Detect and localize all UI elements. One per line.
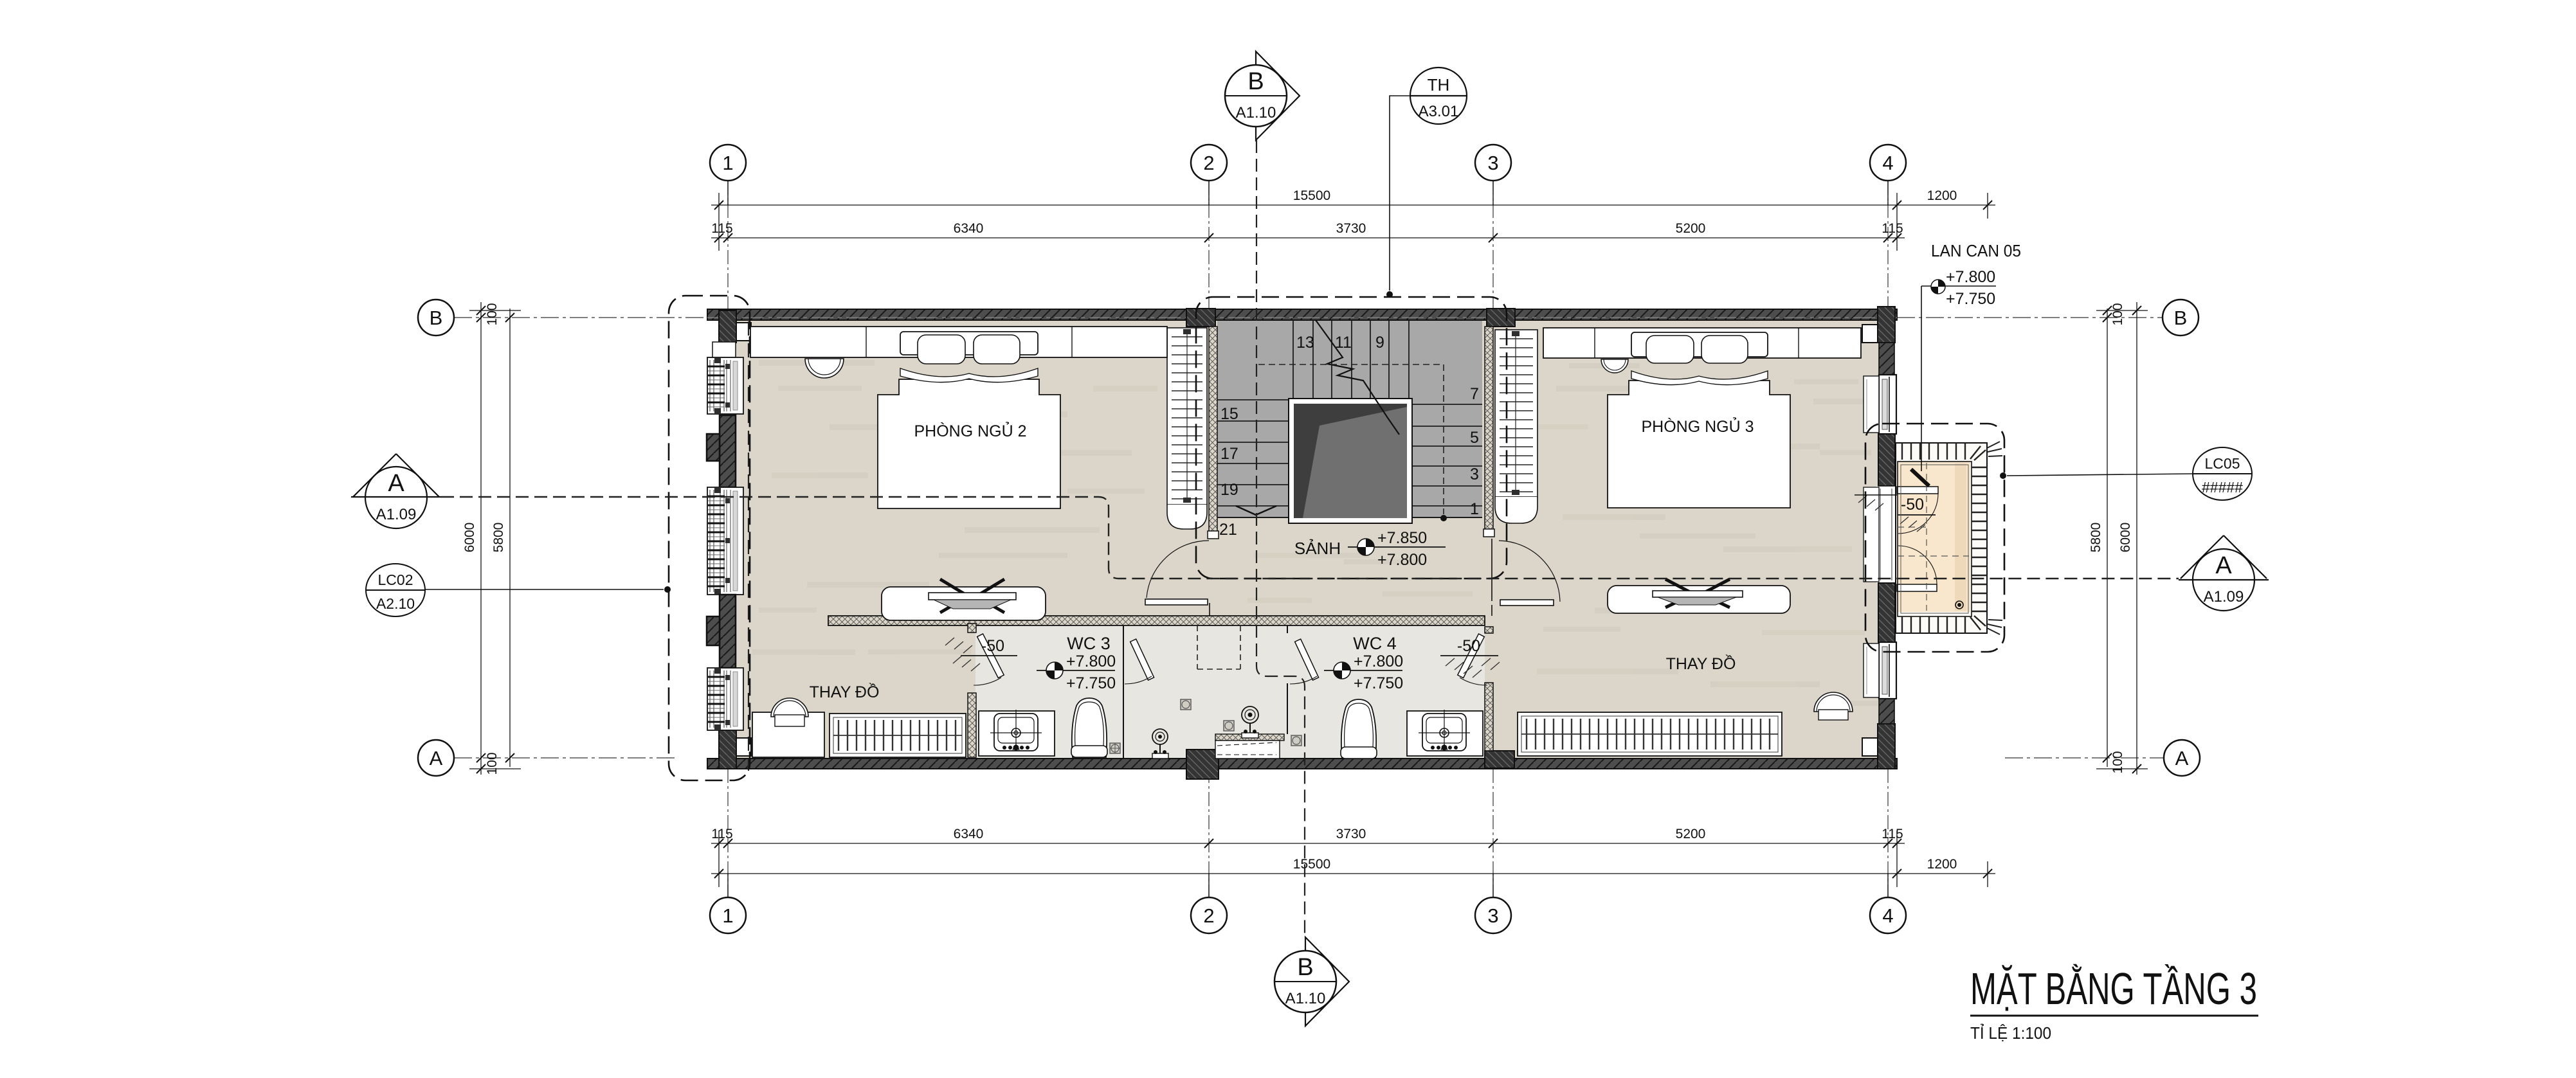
svg-text:100: 100 [2110, 751, 2125, 773]
svg-text:5: 5 [1470, 429, 1479, 447]
svg-text:11: 11 [1335, 334, 1352, 352]
svg-text:LAN CAN 05: LAN CAN 05 [1931, 241, 2021, 260]
svg-text:100: 100 [2110, 303, 2125, 325]
svg-text:A1.09: A1.09 [376, 506, 417, 523]
svg-text:6340: 6340 [954, 221, 984, 236]
svg-text:B: B [1247, 68, 1264, 95]
svg-text:5800: 5800 [2089, 523, 2103, 553]
svg-text:4: 4 [1882, 904, 1893, 927]
svg-text:A1.09: A1.09 [2204, 588, 2244, 606]
svg-text:-50: -50 [1457, 637, 1480, 655]
svg-text:1: 1 [1470, 500, 1479, 518]
svg-text:A: A [430, 747, 443, 769]
svg-text:100: 100 [485, 303, 500, 325]
svg-text:WC 4: WC 4 [1353, 634, 1397, 653]
svg-text:#####: ##### [2202, 479, 2243, 496]
svg-text:+7.800: +7.800 [1354, 652, 1403, 670]
svg-text:+7.750: +7.750 [1066, 674, 1116, 692]
svg-text:TỈ LỆ 1:100: TỈ LỆ 1:100 [1970, 1023, 2051, 1043]
svg-text:3: 3 [1487, 904, 1498, 927]
svg-text:3: 3 [1487, 152, 1498, 174]
svg-text:9: 9 [1375, 334, 1384, 352]
svg-text:-50: -50 [981, 637, 1004, 655]
svg-text:1200: 1200 [1927, 188, 1957, 203]
svg-text:15500: 15500 [1293, 188, 1330, 203]
svg-text:B: B [430, 307, 443, 329]
svg-text:B: B [2174, 307, 2188, 329]
svg-text:B: B [1297, 954, 1313, 981]
svg-text:3730: 3730 [1336, 827, 1366, 841]
svg-text:15: 15 [1220, 405, 1238, 423]
svg-text:WC 3: WC 3 [1067, 634, 1111, 653]
svg-text:A: A [388, 470, 404, 497]
svg-text:5200: 5200 [1676, 221, 1706, 236]
svg-text:LC02: LC02 [378, 571, 413, 588]
svg-text:+7.750: +7.750 [1946, 290, 1995, 308]
svg-text:2: 2 [1203, 152, 1214, 174]
svg-text:+7.750: +7.750 [1354, 674, 1403, 692]
svg-text:+7.800: +7.800 [1946, 268, 1995, 286]
svg-text:A1.10: A1.10 [1285, 990, 1326, 1007]
svg-text:MẶT BẰNG TẦNG 3: MẶT BẰNG TẦNG 3 [1970, 964, 2257, 1014]
svg-text:PHÒNG NGỦ 3: PHÒNG NGỦ 3 [1641, 417, 1754, 436]
svg-text:6000: 6000 [2118, 523, 2133, 553]
svg-text:A1.10: A1.10 [1236, 104, 1276, 121]
svg-text:100: 100 [485, 752, 500, 775]
svg-text:115: 115 [711, 221, 732, 236]
svg-text:A3.01: A3.01 [1419, 103, 1459, 120]
svg-text:+7.800: +7.800 [1377, 551, 1427, 569]
svg-text:13: 13 [1296, 334, 1314, 352]
svg-text:1200: 1200 [1927, 857, 1957, 872]
svg-text:A: A [2175, 747, 2189, 769]
svg-text:3: 3 [1470, 465, 1479, 483]
svg-text:LC05: LC05 [2205, 455, 2240, 472]
svg-text:17: 17 [1220, 445, 1238, 463]
svg-text:3730: 3730 [1336, 221, 1366, 236]
svg-text:2: 2 [1203, 904, 1214, 927]
svg-text:SẢNH: SẢNH [1294, 539, 1341, 558]
svg-text:6000: 6000 [462, 523, 477, 553]
svg-text:THAY ĐỒ: THAY ĐỒ [1666, 654, 1736, 673]
svg-text:-50: -50 [1901, 496, 1924, 514]
svg-text:5800: 5800 [491, 523, 506, 553]
svg-text:5200: 5200 [1676, 827, 1706, 841]
svg-text:A2.10: A2.10 [376, 595, 415, 612]
svg-text:115: 115 [1882, 221, 1903, 236]
svg-text:7: 7 [1470, 385, 1479, 403]
svg-text:1: 1 [722, 904, 733, 927]
svg-text:A: A [2215, 552, 2232, 579]
svg-text:4: 4 [1882, 152, 1893, 174]
svg-text:115: 115 [711, 827, 732, 841]
svg-text:THAY ĐỒ: THAY ĐỒ [810, 682, 880, 701]
svg-text:6340: 6340 [954, 827, 984, 841]
svg-text:PHÒNG NGỦ 2: PHÒNG NGỦ 2 [914, 421, 1026, 440]
svg-text:TH: TH [1428, 75, 1450, 94]
svg-text:+7.850: +7.850 [1377, 529, 1427, 547]
svg-text:21: 21 [1219, 521, 1237, 539]
svg-text:15500: 15500 [1293, 857, 1330, 872]
svg-text:+7.800: +7.800 [1066, 652, 1116, 670]
svg-text:19: 19 [1220, 481, 1238, 499]
svg-text:1: 1 [722, 152, 733, 174]
svg-text:115: 115 [1882, 827, 1903, 841]
